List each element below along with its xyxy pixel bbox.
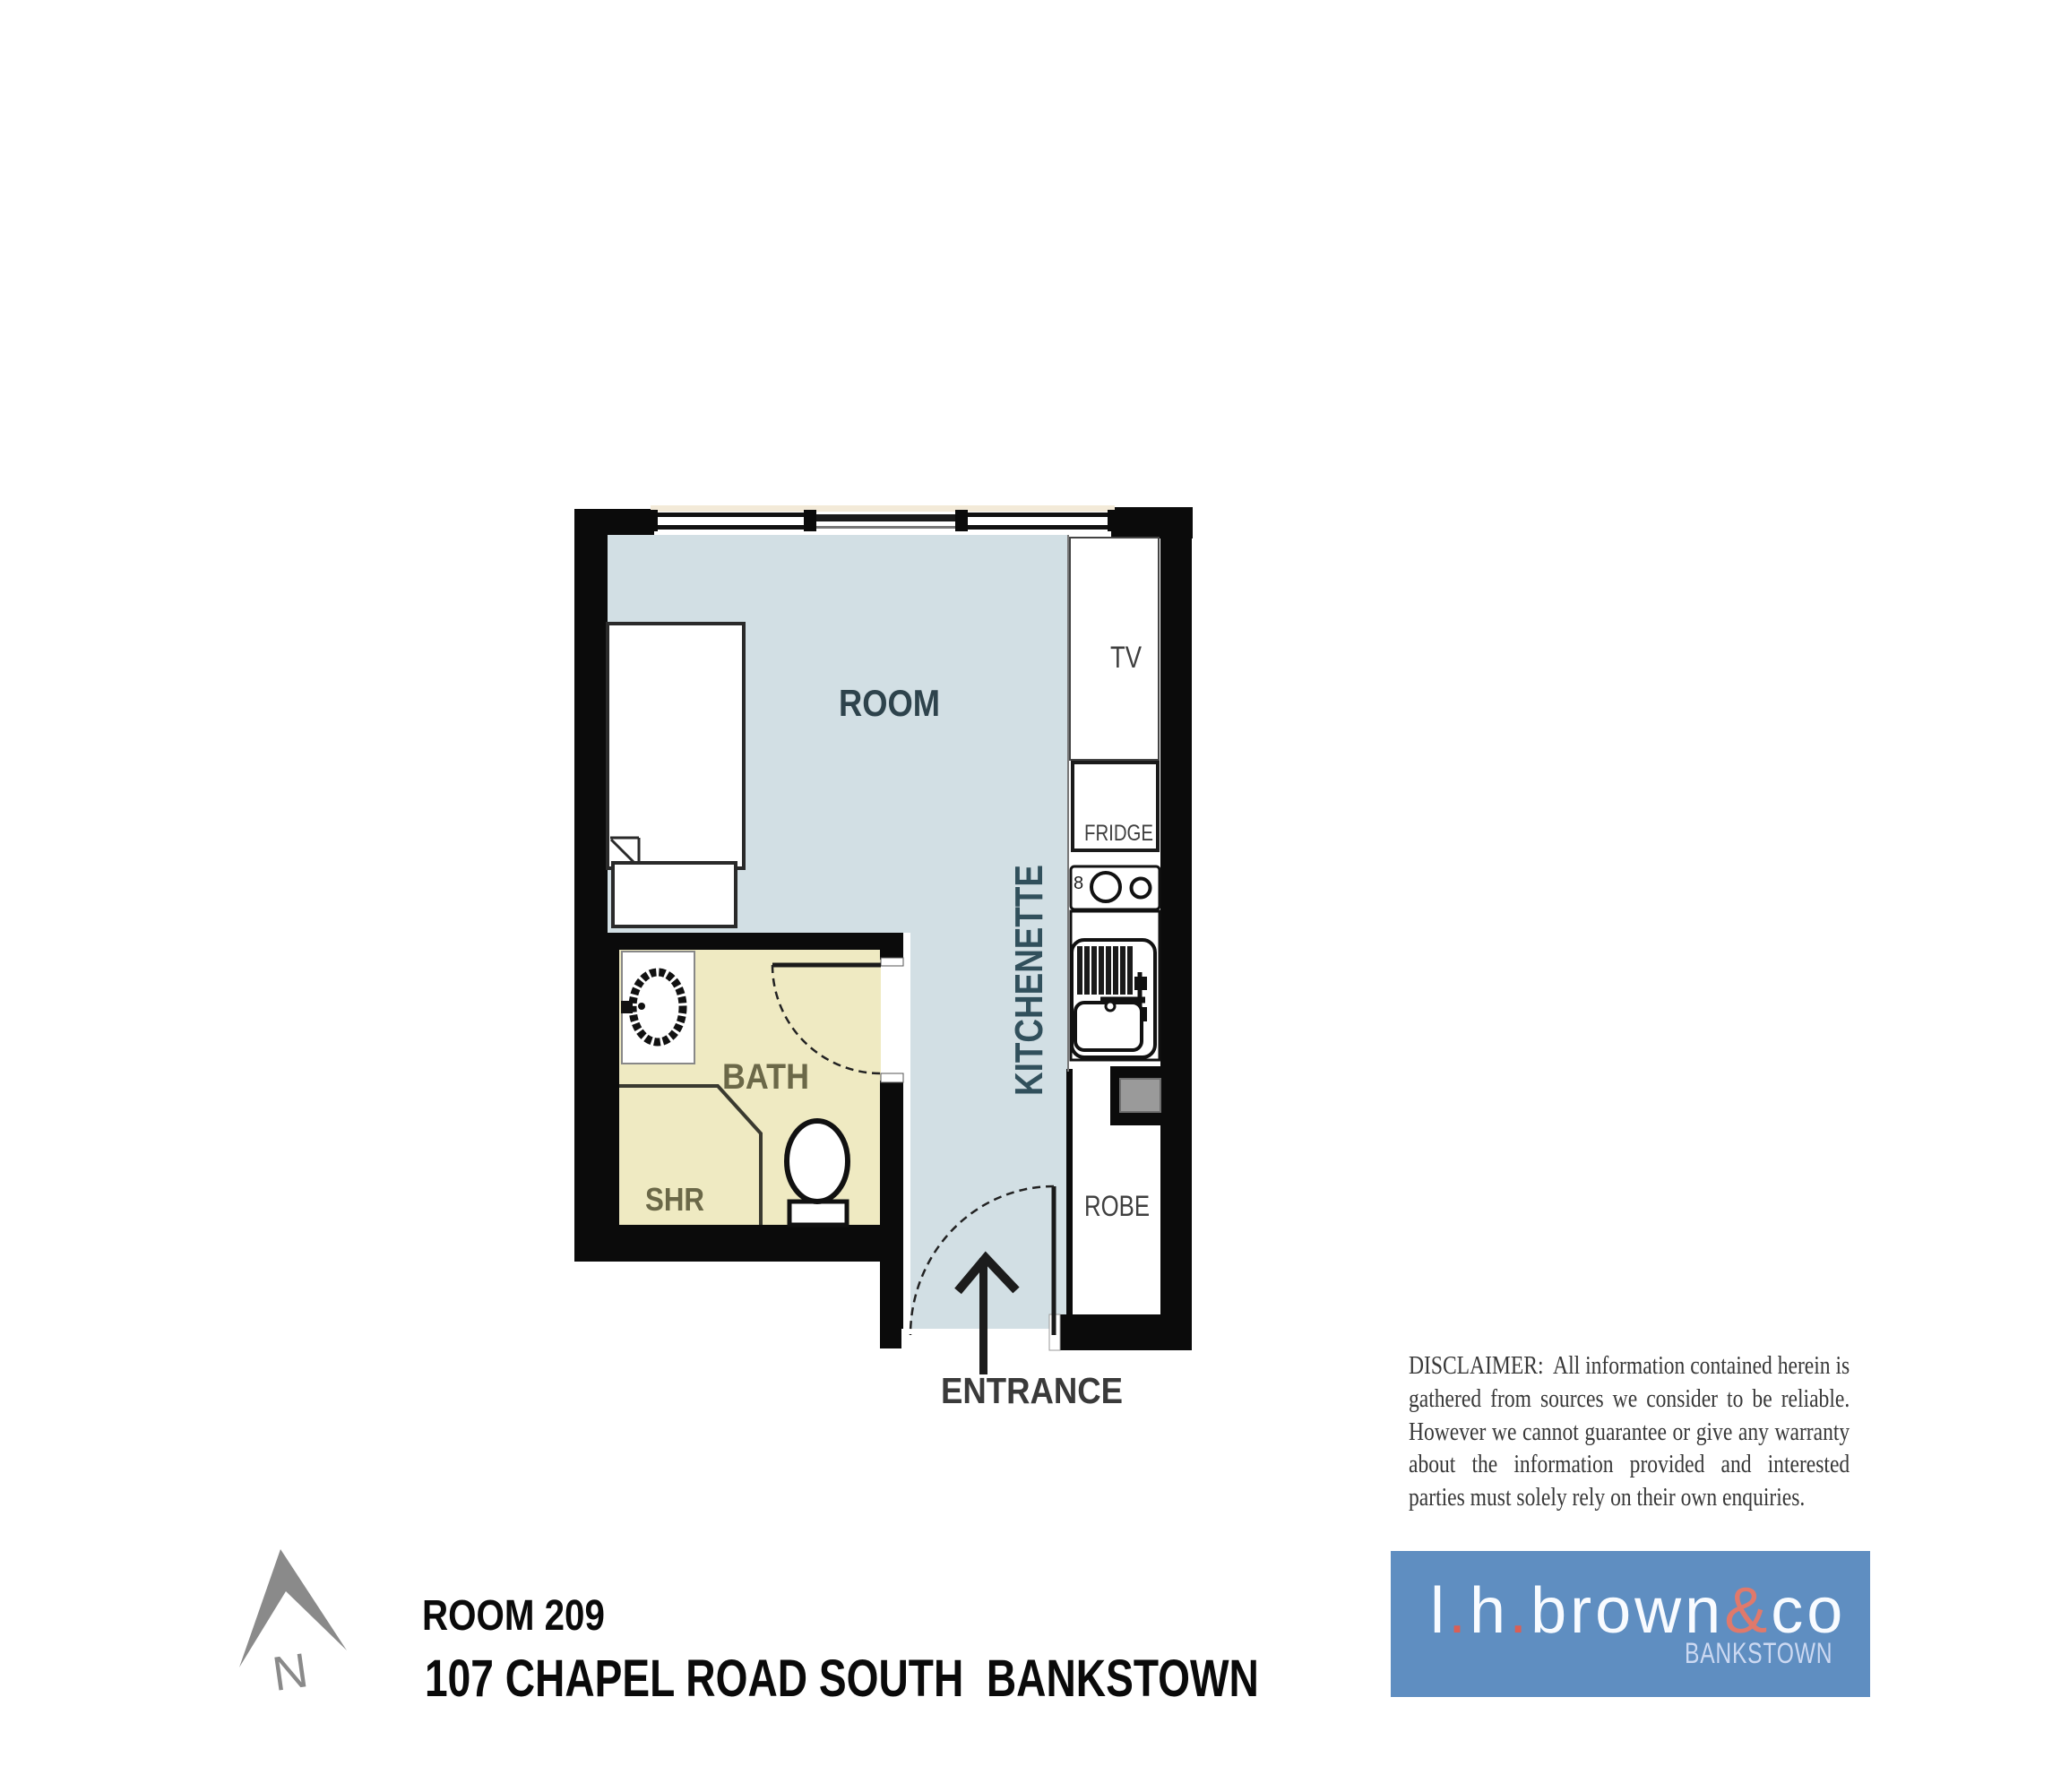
- svg-text:KITCHENETTE: KITCHENETTE: [1007, 865, 1051, 1096]
- svg-text:N: N: [269, 1643, 311, 1702]
- svg-text:ENTRANCE: ENTRANCE: [941, 1370, 1123, 1411]
- svg-text:ROOM: ROOM: [839, 682, 940, 724]
- svg-text:BATH: BATH: [722, 1057, 809, 1097]
- svg-text:SHR: SHR: [645, 1181, 704, 1218]
- svg-text:TV: TV: [1110, 641, 1142, 675]
- svg-text:FRIDGE: FRIDGE: [1084, 821, 1153, 846]
- svg-text:ROBE: ROBE: [1084, 1190, 1150, 1222]
- svg-text:8: 8: [1074, 874, 1083, 893]
